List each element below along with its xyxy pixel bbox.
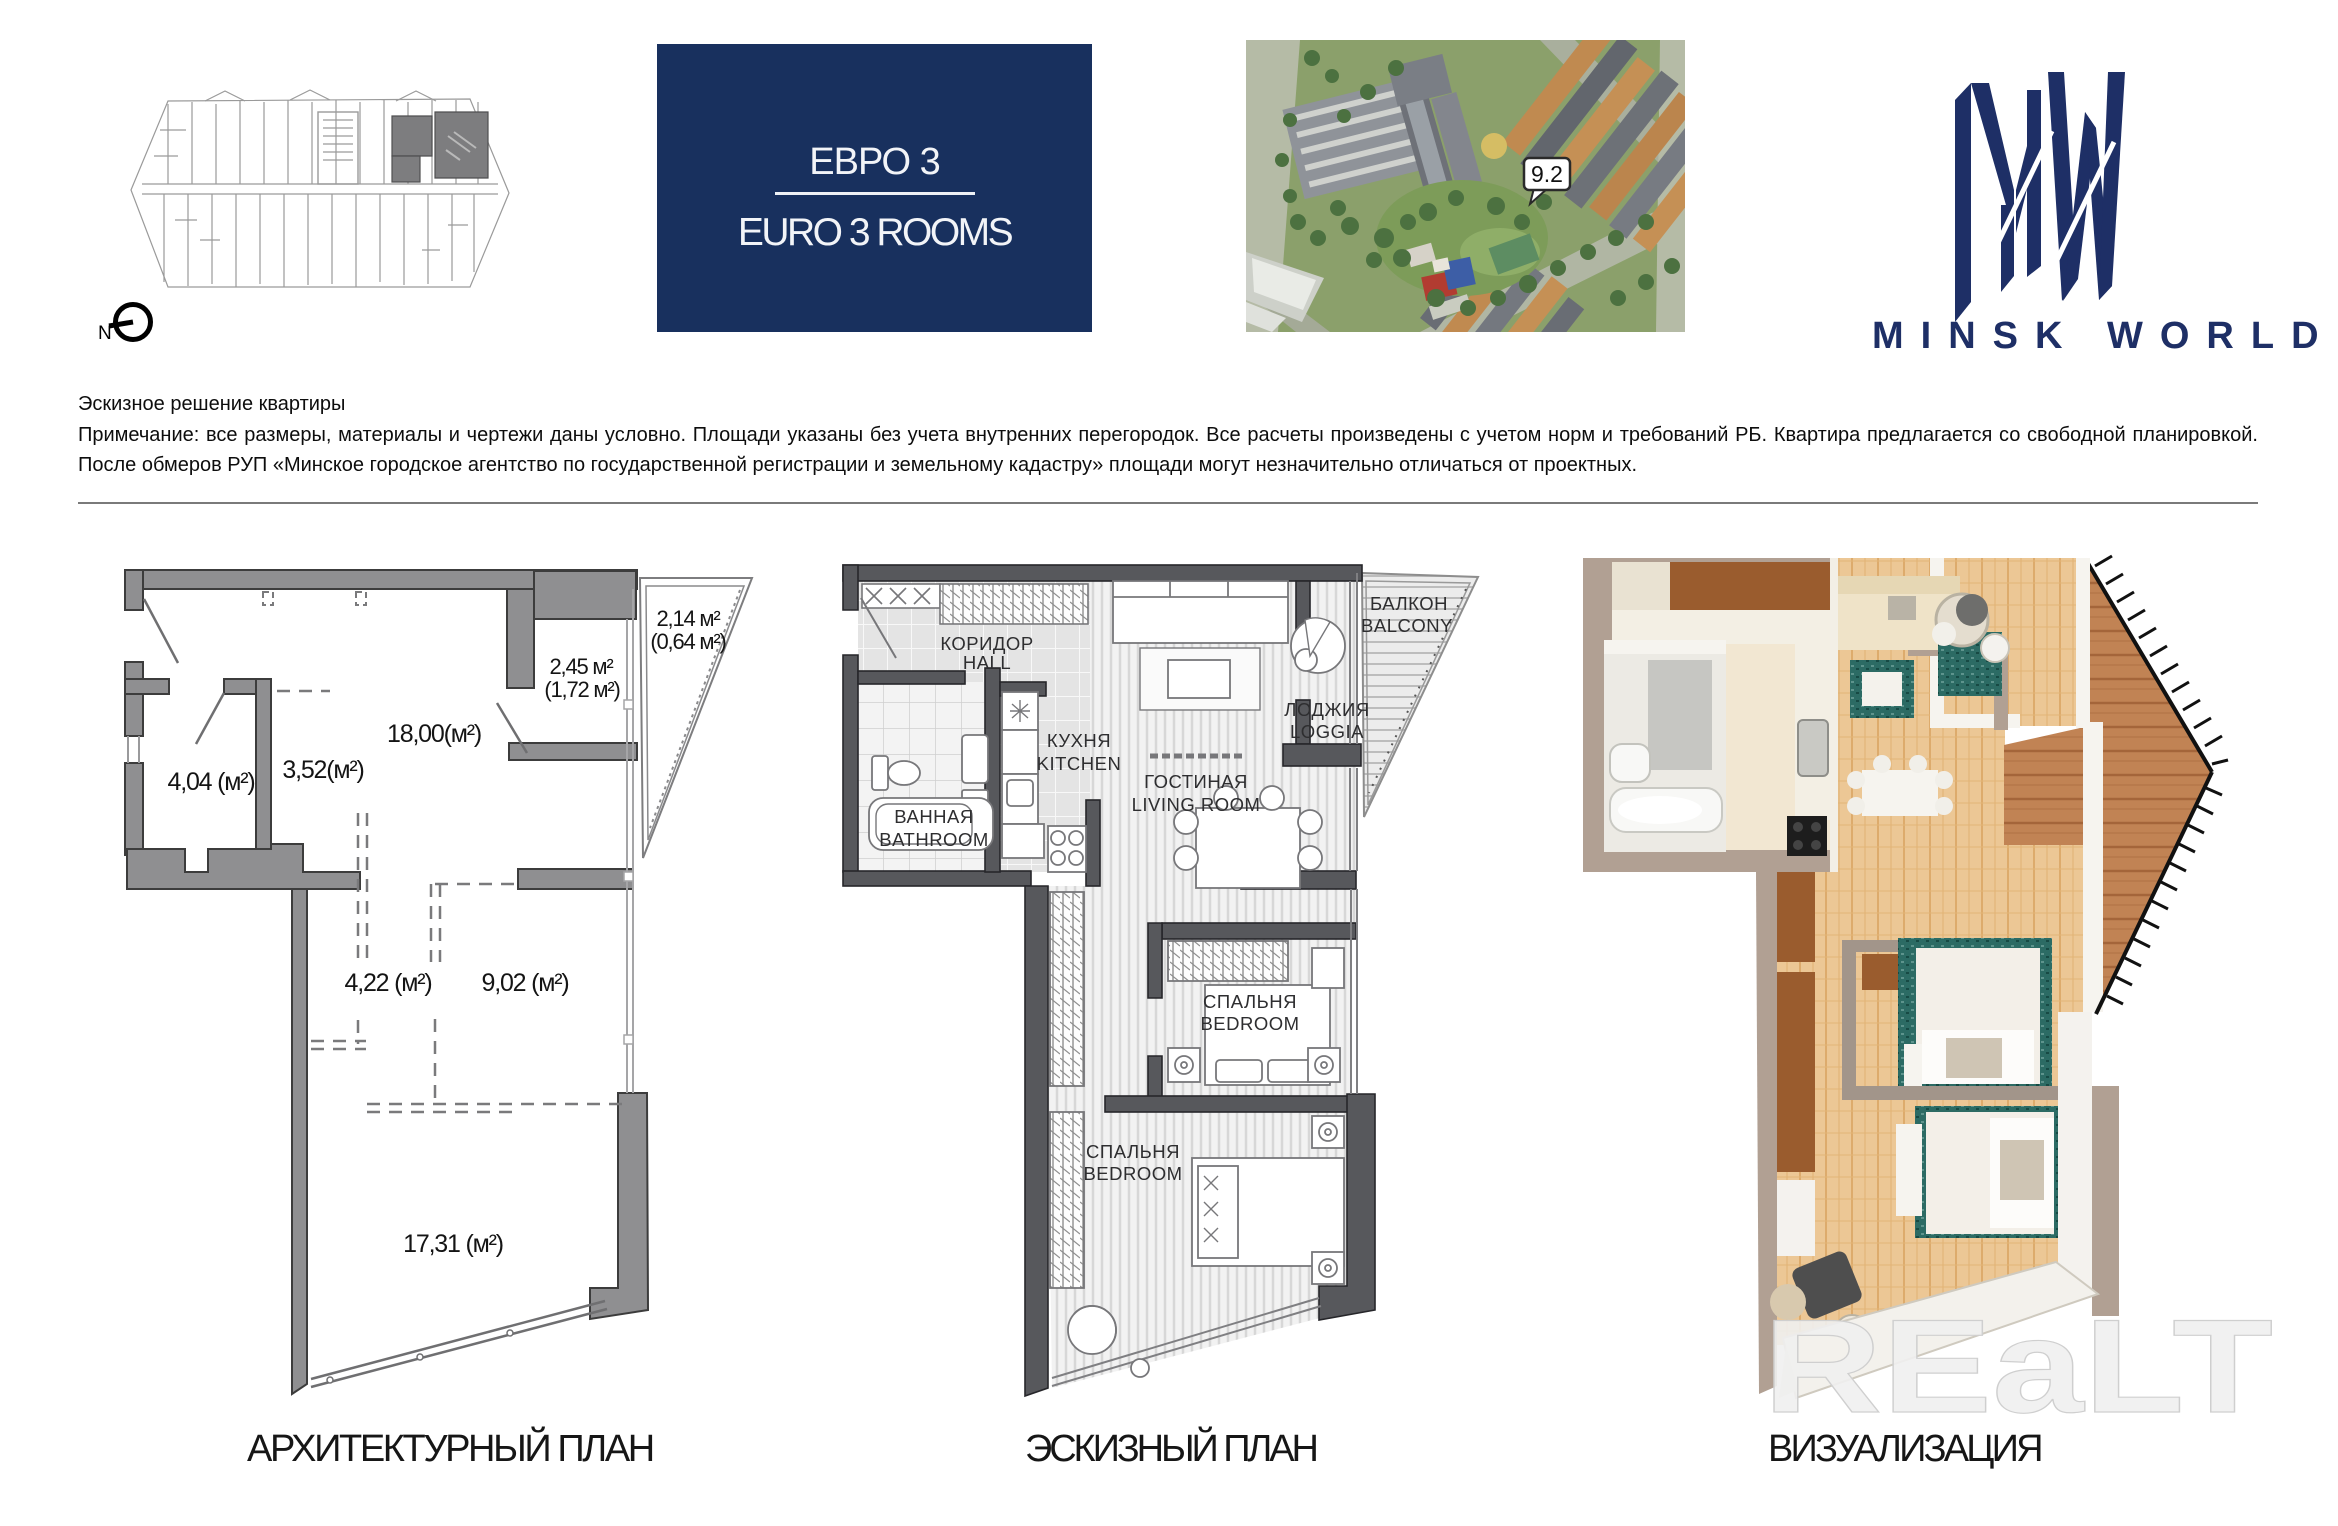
svg-text:18,00(м²): 18,00(м²): [387, 720, 481, 748]
svg-text:N: N: [98, 323, 112, 344]
svg-text:BATHROOM: BATHROOM: [879, 829, 989, 850]
svg-text:(1,72 м²): (1,72 м²): [544, 677, 619, 702]
svg-text:HALL: HALL: [963, 652, 1011, 673]
svg-text:BEDROOM: BEDROOM: [1083, 1163, 1182, 1184]
svg-text:4,04 (м²): 4,04 (м²): [168, 768, 255, 796]
svg-text:LOGGIA: LOGGIA: [1290, 721, 1364, 742]
svg-text:2,45 м²: 2,45 м²: [550, 654, 614, 679]
svg-text:2,14 м²: 2,14 м²: [657, 606, 721, 631]
svg-text:9,02 (м²): 9,02 (м²): [482, 969, 569, 997]
svg-text:BALCONY: BALCONY: [1361, 615, 1453, 636]
svg-text:4,22 (м²): 4,22 (м²): [345, 969, 432, 997]
svg-text:3,52(м²): 3,52(м²): [282, 756, 363, 784]
svg-text:ВАННАЯ: ВАННАЯ: [894, 806, 973, 827]
svg-text:LIVING ROOM: LIVING ROOM: [1132, 794, 1261, 815]
svg-text:(0,64 м²): (0,64 м²): [650, 629, 725, 654]
svg-text:ГОСТИНАЯ: ГОСТИНАЯ: [1144, 771, 1248, 792]
svg-text:БАЛКОН: БАЛКОН: [1370, 593, 1448, 614]
svg-text:9.2: 9.2: [1531, 161, 1563, 187]
svg-text:КОРИДОР: КОРИДОР: [940, 633, 1033, 654]
svg-text:КУХНЯ: КУХНЯ: [1047, 730, 1111, 751]
svg-text:MINSK WORLD: MINSK WORLD: [1872, 315, 2336, 355]
svg-text:17,31 (м²): 17,31 (м²): [403, 1230, 503, 1258]
svg-text:ЛОДЖИЯ: ЛОДЖИЯ: [1284, 699, 1369, 720]
svg-text:СПАЛЬНЯ: СПАЛЬНЯ: [1086, 1141, 1180, 1162]
svg-text:REaLT: REaLT: [1763, 1293, 2273, 1441]
svg-text:KITCHEN: KITCHEN: [1037, 753, 1122, 774]
svg-text:BEDROOM: BEDROOM: [1200, 1013, 1299, 1034]
svg-text:СПАЛЬНЯ: СПАЛЬНЯ: [1203, 991, 1297, 1012]
